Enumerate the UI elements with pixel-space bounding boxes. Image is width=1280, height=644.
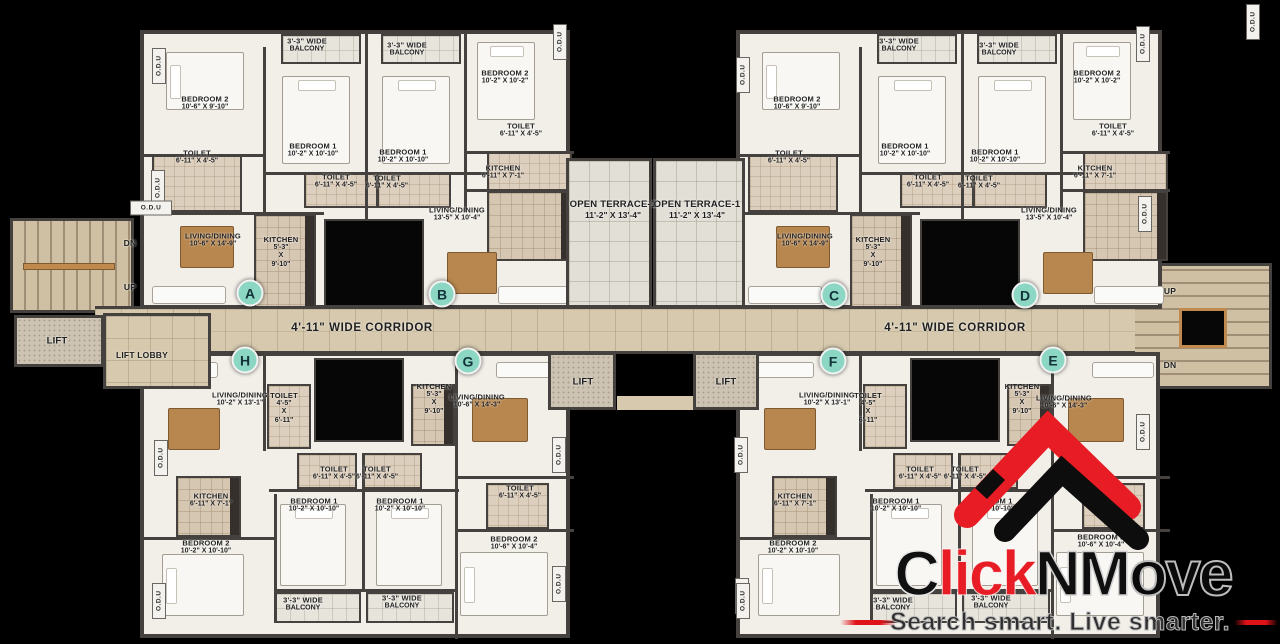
- label-title: 4'-11" WIDE CORRIDOR: [884, 322, 1026, 336]
- label-dims: 10'-2" X 10'-10": [970, 156, 1020, 164]
- kitchen-floor: [1083, 191, 1168, 261]
- odu-label: O.D.U: [552, 566, 566, 602]
- plan-label: TOILET4'-5"X6'-11": [854, 391, 882, 425]
- plan-label: TOILET6'-11" X 4'-5": [176, 148, 218, 165]
- label-dims: 9'-10": [856, 261, 891, 269]
- plan-label: 4'-11" WIDE CORRIDOR: [291, 322, 433, 336]
- odu-label: O.D.U: [736, 57, 750, 93]
- label-title: 4'-11" WIDE CORRIDOR: [291, 322, 433, 336]
- unit-marker-g: G: [455, 348, 482, 375]
- label-title: BEDROOM 1: [871, 496, 921, 505]
- stair-handrail: [23, 263, 115, 270]
- tagline-dash-left: [840, 620, 896, 625]
- label-dims: 6'-11" X 7'-1": [774, 500, 816, 508]
- wall: [455, 529, 574, 532]
- plan-label: BEDROOM 110'-2" X 10'-10": [880, 141, 930, 158]
- label-dims: 13'-5" X 10'-4": [1021, 214, 1077, 222]
- label-title: LIFT LOBBY: [116, 350, 168, 360]
- wall: [455, 476, 574, 479]
- plan-label: LIVING/DINING10'-6" X 14'-9": [185, 231, 241, 248]
- label-title: TOILET: [499, 483, 541, 492]
- label-dims: 9'-10": [417, 408, 452, 416]
- label-dims: BALCONY: [287, 45, 327, 53]
- label-title: BEDROOM 1: [288, 141, 338, 150]
- stair-well-void: [1179, 308, 1227, 348]
- label-dims: 10'-2" X 10'-10": [289, 505, 339, 513]
- plan-label: BEDROOM 110'-2" X 10'-10": [288, 141, 338, 158]
- plan-label: TOILET6'-11" X 4'-5": [958, 173, 1000, 190]
- label-dims: 10'-2" X 10'-10": [378, 156, 428, 164]
- label-dims: 6'-11" X 7'-1": [482, 172, 524, 180]
- label-title: TOILET: [313, 464, 355, 473]
- odu-label: O.D.U: [734, 437, 748, 473]
- plan-label: BEDROOM 210'-2" X 10'-10": [768, 538, 818, 555]
- label-dims: X: [856, 252, 891, 260]
- odu-label: O.D.U: [154, 440, 168, 476]
- label-dims: 6'-11" X 4'-5": [899, 473, 941, 481]
- plan-label: LIVING/DINING10'-6" X 14'-3": [449, 392, 505, 409]
- odu-label: O.D.U: [1138, 196, 1152, 232]
- corridor-stub: [617, 396, 695, 410]
- label-title: BEDROOM 2: [773, 94, 820, 103]
- label-title: LIFT: [573, 376, 594, 387]
- label-title: DN: [124, 238, 137, 248]
- label-dims: 11'-2" X 13'-4": [654, 211, 741, 221]
- open-terrace-1-right: [653, 158, 745, 308]
- plan-label: OPEN TERRACE-111'-2" X 13'-4": [654, 199, 741, 221]
- label-dims: X: [270, 408, 298, 416]
- label-title: KITCHEN: [264, 235, 299, 244]
- label-title: 3'-3" WIDE: [283, 595, 323, 604]
- label-dims: 6'-11" X 7'-1": [1074, 172, 1116, 180]
- plan-label: BEDROOM 210'-6" X 10'-4": [490, 534, 537, 551]
- plan-label: 3'-3" WIDEBALCONY: [979, 40, 1019, 57]
- wall: [740, 212, 920, 215]
- plan-label: BEDROOM 110'-2" X 10'-10": [970, 147, 1020, 164]
- wall: [1060, 151, 1170, 154]
- bed: [460, 552, 548, 616]
- label-title: TOILET: [899, 464, 941, 473]
- wall: [464, 34, 467, 212]
- open-terrace-1-left: [566, 158, 652, 308]
- label-title: LIFT: [716, 376, 737, 387]
- plan-label: BEDROOM 110'-2" X 10'-10": [378, 147, 428, 164]
- dining-table: [764, 408, 816, 450]
- label-title: KITCHEN: [774, 491, 816, 500]
- label-title: KITCHEN: [856, 235, 891, 244]
- plan-label: 3'-3" WIDEBALCONY: [387, 40, 427, 57]
- bed: [758, 554, 840, 616]
- label-title: TOILET: [315, 172, 357, 181]
- label-title: TOILET: [958, 173, 1000, 182]
- label-dims: 6'-11" X 7'-1": [190, 500, 232, 508]
- label-title: LIVING/DINING: [1021, 205, 1077, 214]
- label-dims: 6'-11" X 4'-5": [176, 157, 218, 165]
- plan-label: LIVING/DINING13'-5" X 10'-4": [429, 205, 485, 222]
- shaft-void: [920, 219, 1020, 307]
- label-dims: X: [264, 252, 299, 260]
- label-dims: BALCONY: [283, 604, 323, 612]
- label-title: BEDROOM 1: [378, 147, 428, 156]
- label-title: 3'-3" WIDE: [387, 40, 427, 49]
- label-dims: 6'-11" X 4'-5": [499, 492, 541, 500]
- label-dims: 6'-11" X 4'-5": [958, 182, 1000, 190]
- label-title: LIVING/DINING: [449, 392, 505, 401]
- label-dims: 10'-6" X 14'-9": [185, 240, 241, 248]
- plan-label: TOILET6'-11" X 4'-5": [1092, 121, 1134, 138]
- plan-label: TOILET6'-11" X 4'-5": [500, 121, 542, 138]
- label-dims: 10'-2" X 10'-10": [871, 505, 921, 513]
- unit-marker-a: A: [237, 280, 264, 307]
- label-title: BEDROOM 2: [490, 534, 537, 543]
- wall: [961, 34, 964, 219]
- label-title: BEDROOM 2: [481, 68, 528, 77]
- plan-label: TOILET6'-11" X 4'-5": [315, 172, 357, 189]
- label-title: KITCHEN: [417, 382, 452, 391]
- label-dims: 13'-5" X 10'-4": [429, 214, 485, 222]
- plan-label: LIFT LOBBY: [116, 350, 168, 360]
- plan-label: BEDROOM 110'-2" X 10'-10": [375, 496, 425, 513]
- unit-marker-h: H: [232, 347, 259, 374]
- wall: [274, 494, 277, 623]
- label-title: KITCHEN: [190, 491, 232, 500]
- label-title: BEDROOM 1: [375, 496, 425, 505]
- dining-table: [1043, 252, 1093, 294]
- odu-label: O.D.U: [736, 583, 750, 619]
- label-dims: BALCONY: [979, 49, 1019, 57]
- sofa: [152, 286, 226, 304]
- wall: [859, 47, 862, 212]
- plan-label: 3'-3" WIDEBALCONY: [287, 36, 327, 53]
- label-dims: 6'-11" X 4'-5": [315, 181, 357, 189]
- odu-label: O.D.U: [1246, 4, 1260, 40]
- plan-label: BEDROOM 210'-2" X 10'-2": [1073, 68, 1120, 85]
- label-dims: 10'-2" X 13'-1": [799, 399, 855, 407]
- plan-label: BEDROOM 110'-2" X 10'-10": [289, 496, 339, 513]
- bed: [376, 504, 442, 586]
- sofa: [498, 286, 568, 304]
- brand-logo: ClickNMove: [838, 543, 1280, 606]
- unit-marker-e: E: [1040, 347, 1067, 374]
- label-title: BEDROOM 2: [1073, 68, 1120, 77]
- plan-label: LIFT: [573, 376, 594, 387]
- plan-label: BEDROOM 210'-2" X 10'-2": [481, 68, 528, 85]
- label-dims: 10'-2" X 10'-2": [1073, 77, 1120, 85]
- plan-label: TOILET6'-11" X 4'-5": [768, 148, 810, 165]
- logo-part-4: ove: [1129, 539, 1232, 609]
- label-dims: BALCONY: [879, 45, 919, 53]
- wall: [1060, 34, 1063, 212]
- plan-label: LIVING/DINING10'-6" X 14'-9": [777, 231, 833, 248]
- bed: [162, 554, 244, 616]
- plan-label: BEDROOM 210'-6" X 9'-10": [773, 94, 820, 111]
- label-dims: BALCONY: [382, 602, 422, 610]
- plan-label: TOILET6'-11" X 4'-5": [366, 173, 408, 190]
- label-dims: 10'-2" X 10'-10": [181, 547, 231, 555]
- label-dims: 6'-11" X 4'-5": [356, 473, 398, 481]
- label-dims: X: [417, 399, 452, 407]
- label-title: UP: [1164, 286, 1176, 296]
- label-dims: 6'-11": [270, 417, 298, 425]
- label-title: 3'-3" WIDE: [979, 40, 1019, 49]
- unit-marker-d: D: [1012, 282, 1039, 309]
- wall: [1060, 189, 1170, 192]
- label-dims: 9'-10": [264, 261, 299, 269]
- wall: [464, 151, 574, 154]
- label-dims: 10'-2" X 10'-10": [288, 150, 338, 158]
- plan-label: KITCHEN5'-3"X9'-10": [856, 235, 891, 269]
- shaft-void: [314, 358, 404, 442]
- label-title: DN: [1164, 360, 1177, 370]
- plan-label: BEDROOM 110'-2" X 10'-10": [871, 496, 921, 513]
- label-dims: 6'-11" X 4'-5": [366, 182, 408, 190]
- plan-label: OPEN TERRACE-111'-2" X 13'-4": [570, 199, 657, 221]
- wall: [263, 47, 266, 212]
- label-title: BEDROOM 1: [289, 496, 339, 505]
- tagline-dash-right: [1234, 620, 1278, 625]
- odu-label: O.D.U: [553, 24, 567, 60]
- label-dims: 10'-6" X 10'-4": [490, 543, 537, 551]
- label-title: LIFT: [47, 335, 68, 346]
- label-title: BEDROOM 1: [970, 147, 1020, 156]
- label-title: KITCHEN: [482, 163, 524, 172]
- plan-label: TOILET4'-5"X6'-11": [270, 391, 298, 425]
- unit-marker-b: B: [429, 281, 456, 308]
- plan-label: TOILET6'-11" X 4'-5": [907, 172, 949, 189]
- label-dims: 10'-2" X 10'-10": [375, 505, 425, 513]
- plan-label: TOILET6'-11" X 4'-5": [899, 464, 941, 481]
- floor-plan-canvas: ClickNMove Search smart. Live smarter. B…: [0, 0, 1280, 644]
- kitchen-floor: [487, 191, 572, 261]
- label-dims: 10'-6" X 9'-10": [181, 103, 228, 111]
- odu-label: O.D.U: [130, 201, 172, 216]
- plan-label: DN: [1164, 360, 1177, 370]
- label-title: OPEN TERRACE-1: [570, 199, 657, 210]
- plan-label: KITCHEN5'-3"X9'-10": [264, 235, 299, 269]
- logo-part-1: C: [894, 539, 938, 609]
- plan-label: LIFT: [47, 335, 68, 346]
- logo-part-2: lick: [938, 539, 1035, 609]
- label-dims: 6'-11" X 4'-5": [1092, 130, 1134, 138]
- wall: [274, 589, 458, 592]
- label-title: LIVING/DINING: [185, 231, 241, 240]
- sofa: [1092, 362, 1154, 378]
- label-title: OPEN TERRACE-1: [654, 199, 741, 210]
- label-dims: X: [854, 408, 882, 416]
- label-title: 3'-3" WIDE: [287, 36, 327, 45]
- label-title: TOILET: [768, 148, 810, 157]
- label-dims: 6'-11" X 4'-5": [313, 473, 355, 481]
- plan-label: TOILET6'-11" X 4'-5": [356, 464, 398, 481]
- label-dims: 6'-11" X 4'-5": [500, 130, 542, 138]
- label-title: BEDROOM 2: [768, 538, 818, 547]
- plan-label: TOILET6'-11" X 4'-5": [499, 483, 541, 500]
- plan-label: LIVING/DINING10'-2" X 13'-1": [212, 390, 268, 407]
- label-title: TOILET: [356, 464, 398, 473]
- label-title: 3'-3" WIDE: [879, 36, 919, 45]
- label-title: 3'-3" WIDE: [382, 593, 422, 602]
- label-title: LIVING/DINING: [799, 390, 855, 399]
- label-title: BEDROOM 2: [181, 538, 231, 547]
- label-title: UP: [124, 282, 136, 292]
- label-dims: 10'-2" X 10'-10": [880, 150, 930, 158]
- plan-label: TOILET6'-11" X 4'-5": [313, 464, 355, 481]
- brand-tagline: Search smart. Live smarter.: [880, 608, 1240, 637]
- label-title: TOILET: [270, 391, 298, 400]
- label-title: LIVING/DINING: [212, 390, 268, 399]
- bed: [280, 504, 346, 586]
- label-dims: 10'-6" X 14'-9": [777, 240, 833, 248]
- label-dims: BALCONY: [387, 49, 427, 57]
- plan-label: KITCHEN6'-11" X 7'-1": [482, 163, 524, 180]
- label-dims: 6'-11" X 4'-5": [907, 181, 949, 189]
- plan-label: LIVING/DINING10'-2" X 13'-1": [799, 390, 855, 407]
- staircase-left: [10, 218, 134, 313]
- sofa: [748, 286, 822, 304]
- wall: [365, 34, 368, 219]
- label-dims: 11'-2" X 13'-4": [570, 211, 657, 221]
- plan-label: KITCHEN6'-11" X 7'-1": [190, 491, 232, 508]
- label-title: TOILET: [854, 391, 882, 400]
- label-dims: 10'-2" X 10'-10": [768, 547, 818, 555]
- label-title: TOILET: [907, 172, 949, 181]
- dining-table: [168, 408, 220, 450]
- dining-table: [447, 252, 497, 294]
- label-title: KITCHEN: [1005, 382, 1040, 391]
- unit-marker-f: F: [820, 348, 847, 375]
- odu-label: O.D.U: [1136, 26, 1150, 62]
- logo-part-3: NM: [1035, 539, 1129, 609]
- label-title: LIVING/DINING: [777, 231, 833, 240]
- label-title: BEDROOM 1: [880, 141, 930, 150]
- plan-label: 3'-3" WIDEBALCONY: [879, 36, 919, 53]
- label-title: TOILET: [366, 173, 408, 182]
- wall: [464, 189, 574, 192]
- plan-label: BEDROOM 210'-6" X 9'-10": [181, 94, 228, 111]
- plan-label: KITCHEN5'-3"X9'-10": [417, 382, 452, 416]
- label-title: LIVING/DINING: [429, 205, 485, 214]
- label-dims: 6'-11": [854, 417, 882, 425]
- plan-label: KITCHEN6'-11" X 7'-1": [774, 491, 816, 508]
- plan-label: 3'-3" WIDEBALCONY: [382, 593, 422, 610]
- odu-label: O.D.U: [552, 437, 566, 473]
- odu-label: O.D.U: [152, 48, 166, 84]
- label-title: TOILET: [1092, 121, 1134, 130]
- label-dims: 10'-2" X 10'-2": [481, 77, 528, 85]
- plan-label: UP: [1164, 286, 1176, 296]
- label-dims: 10'-6" X 9'-10": [773, 103, 820, 111]
- sofa: [1094, 286, 1164, 304]
- label-title: TOILET: [176, 148, 218, 157]
- label-dims: 10'-6" X 14'-3": [449, 401, 505, 409]
- plan-label: LIFT: [716, 376, 737, 387]
- plan-label: 3'-3" WIDEBALCONY: [283, 595, 323, 612]
- plan-label: BEDROOM 210'-2" X 10'-10": [181, 538, 231, 555]
- brand-house-icon: [945, 393, 1155, 558]
- label-dims: 6'-11" X 4'-5": [768, 157, 810, 165]
- plan-label: DN: [124, 238, 137, 248]
- plan-label: 4'-11" WIDE CORRIDOR: [884, 322, 1026, 336]
- odu-label: O.D.U: [152, 583, 166, 619]
- plan-label: KITCHEN6'-11" X 7'-1": [1074, 163, 1116, 180]
- wall: [269, 489, 459, 492]
- plan-label: LIVING/DINING13'-5" X 10'-4": [1021, 205, 1077, 222]
- label-title: TOILET: [500, 121, 542, 130]
- label-dims: 10'-2" X 13'-1": [212, 399, 268, 407]
- label-title: KITCHEN: [1074, 163, 1116, 172]
- shaft-void: [324, 219, 424, 307]
- plan-label: UP: [124, 282, 136, 292]
- unit-marker-c: C: [821, 282, 848, 309]
- label-title: BEDROOM 2: [181, 94, 228, 103]
